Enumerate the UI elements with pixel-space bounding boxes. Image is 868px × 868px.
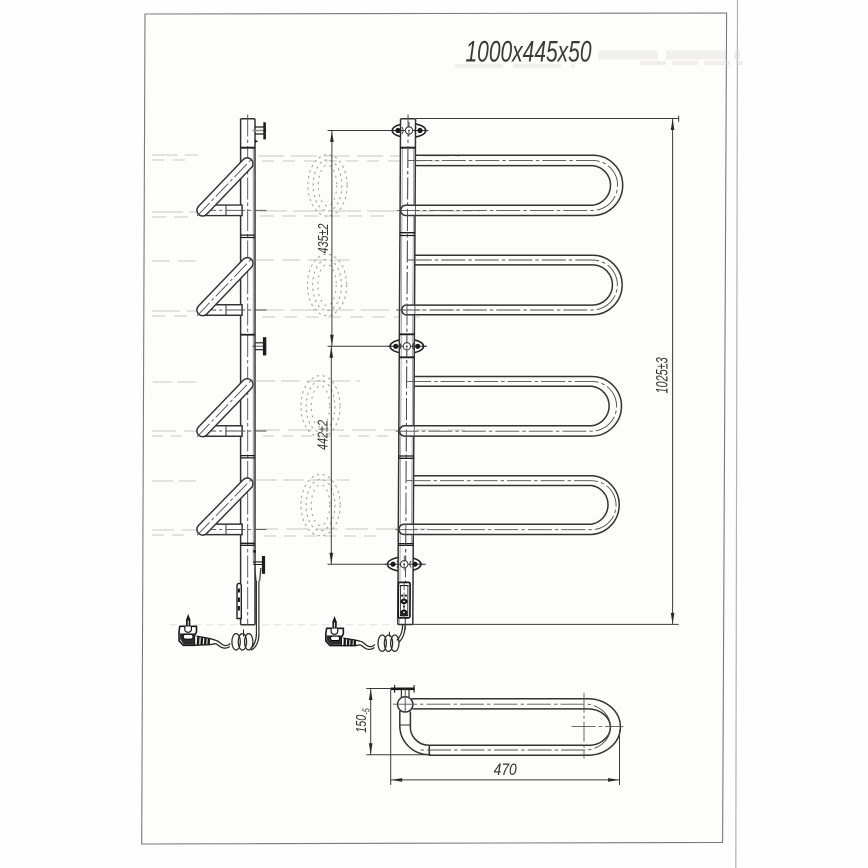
svg-text:1000x445x50: 1000x445x50: [465, 36, 592, 68]
svg-text:470: 470: [494, 761, 518, 779]
svg-text:435±2: 435±2: [314, 223, 331, 254]
svg-text:442±2: 442±2: [314, 419, 331, 450]
svg-text:1025±3: 1025±3: [652, 357, 671, 393]
